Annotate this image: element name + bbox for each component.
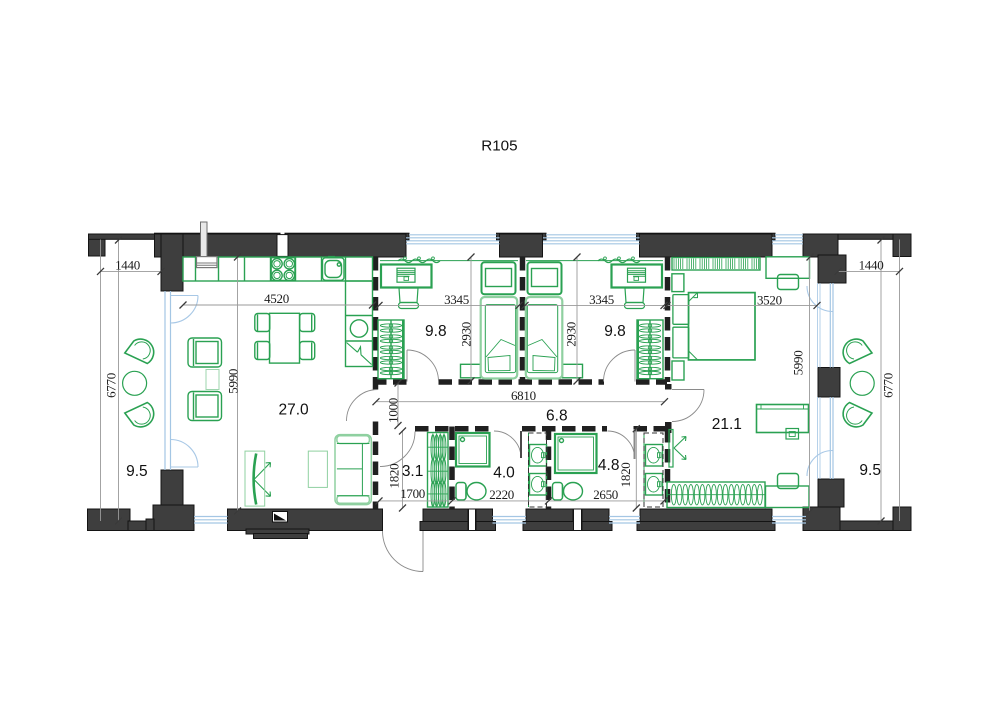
svg-text:9.8: 9.8 — [604, 323, 626, 340]
svg-text:9.5: 9.5 — [126, 463, 148, 480]
svg-text:2930: 2930 — [564, 322, 579, 347]
svg-text:3345: 3345 — [444, 292, 469, 307]
svg-text:5990: 5990 — [791, 351, 806, 376]
svg-text:3345: 3345 — [589, 292, 614, 307]
svg-text:9.8: 9.8 — [425, 323, 447, 340]
svg-text:4520: 4520 — [264, 291, 289, 306]
svg-text:1000: 1000 — [385, 398, 400, 423]
svg-text:6770: 6770 — [104, 373, 119, 398]
svg-text:6.8: 6.8 — [546, 407, 568, 424]
svg-text:2650: 2650 — [593, 487, 618, 502]
svg-text:3520: 3520 — [757, 292, 782, 307]
svg-text:2220: 2220 — [489, 487, 514, 502]
svg-text:3.1: 3.1 — [402, 463, 424, 480]
svg-text:R105: R105 — [481, 137, 517, 154]
svg-text:2930: 2930 — [459, 322, 474, 347]
svg-text:1440: 1440 — [115, 258, 140, 273]
svg-text:1820: 1820 — [387, 464, 402, 489]
svg-text:1820: 1820 — [618, 462, 633, 487]
svg-text:6810: 6810 — [511, 388, 536, 403]
svg-text:1700: 1700 — [400, 486, 425, 501]
svg-text:5990: 5990 — [226, 369, 241, 394]
svg-text:6770: 6770 — [881, 373, 896, 398]
svg-text:21.1: 21.1 — [712, 416, 742, 433]
svg-text:4.0: 4.0 — [493, 465, 515, 482]
svg-text:1440: 1440 — [859, 258, 884, 273]
svg-text:27.0: 27.0 — [279, 402, 310, 419]
svg-text:9.5: 9.5 — [859, 462, 881, 479]
svg-text:4.8: 4.8 — [598, 457, 620, 474]
